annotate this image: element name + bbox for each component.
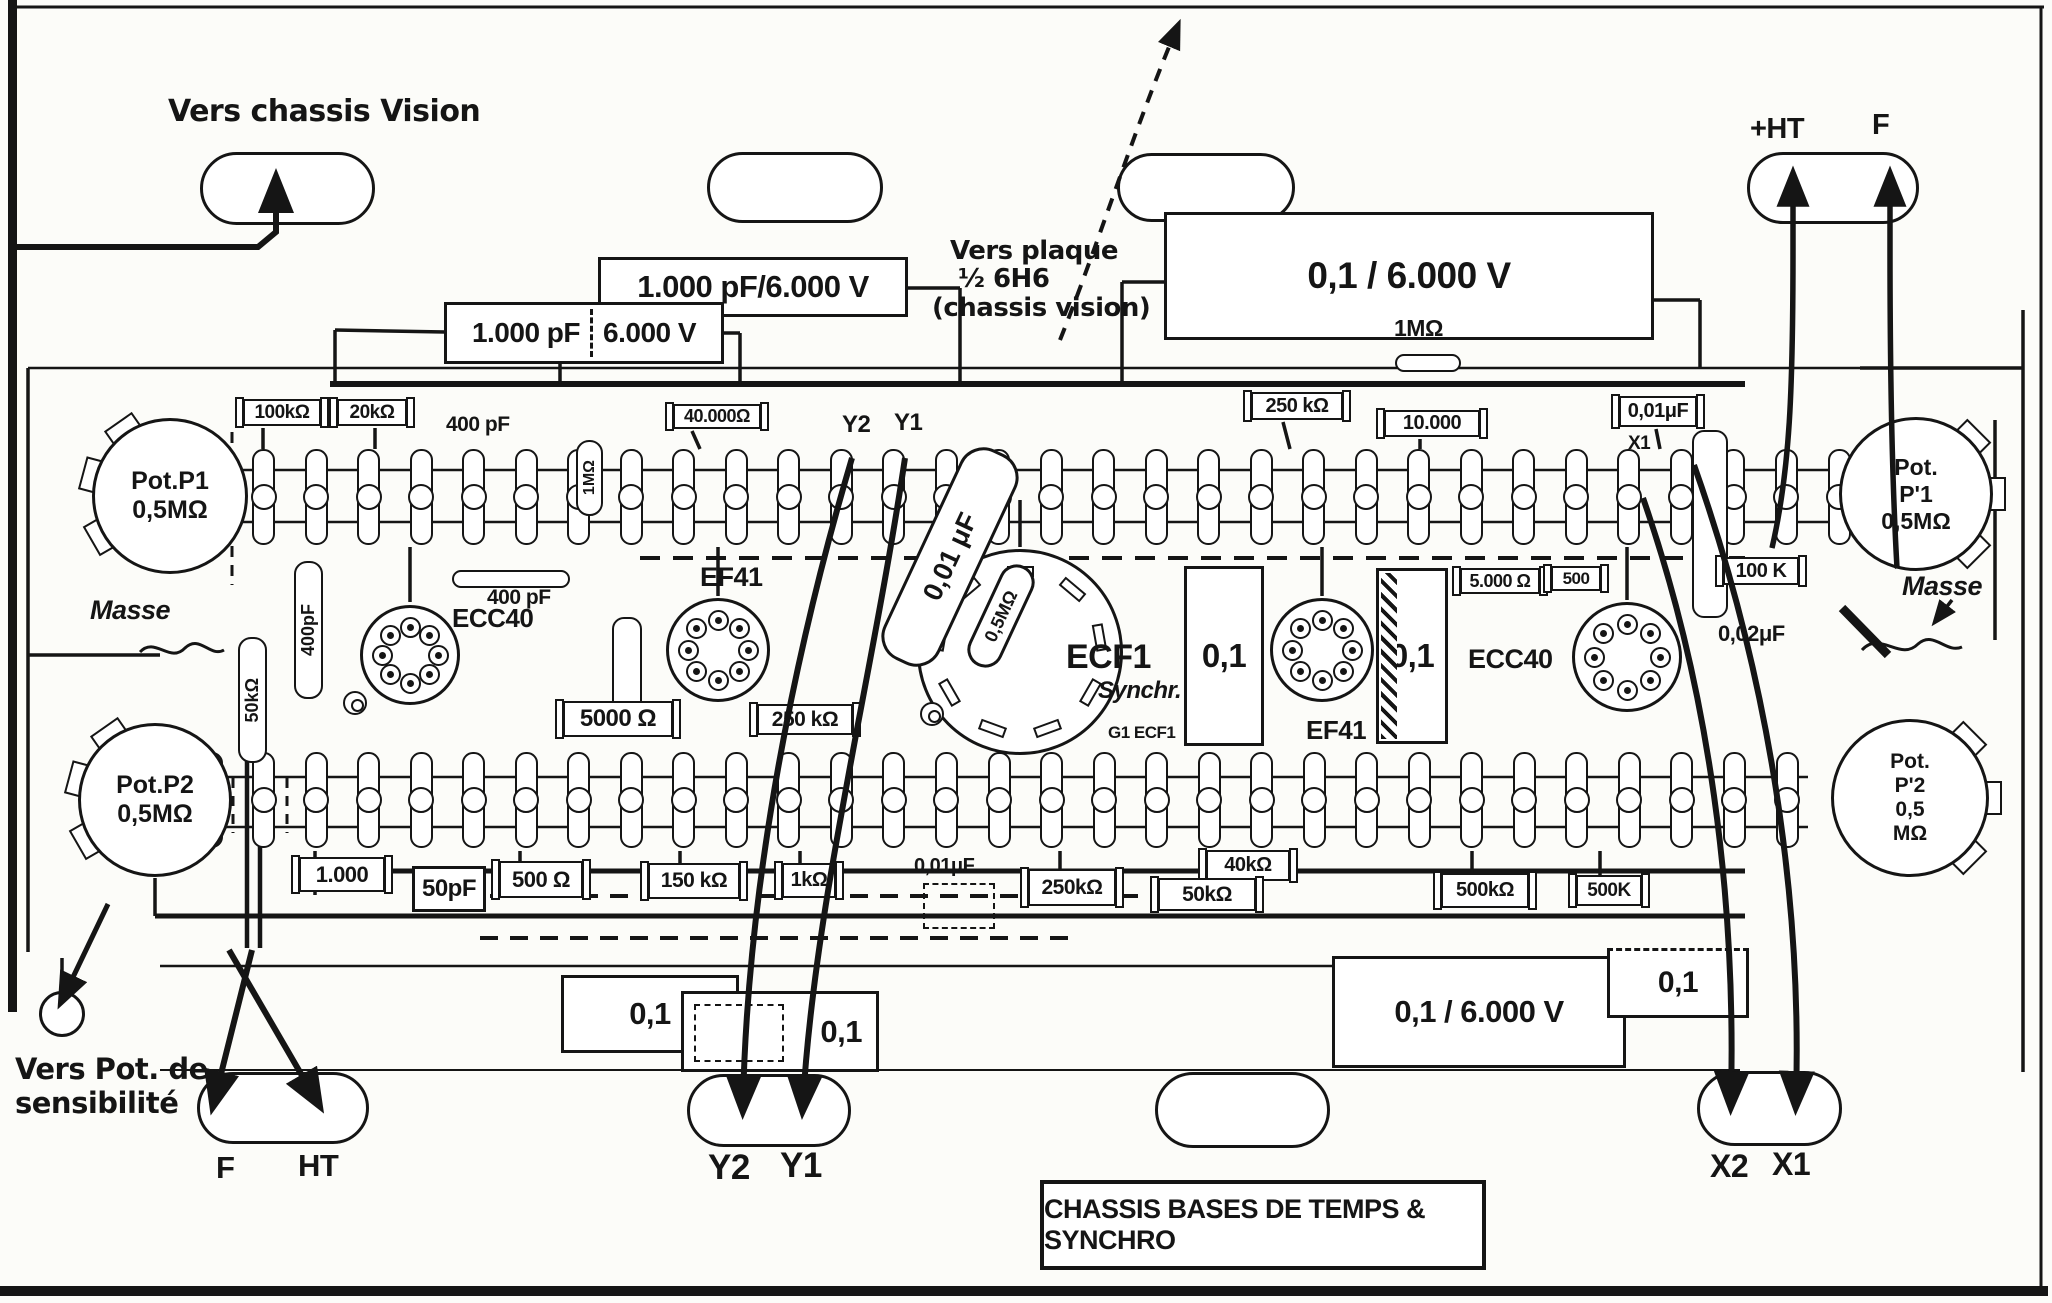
component-50kohm-vertical-label: 50kΩ <box>242 678 263 722</box>
component-400pf-vertical: 400pF <box>294 561 323 699</box>
resistor-endcap <box>852 702 861 737</box>
lug-solder-hole <box>671 787 697 813</box>
lug-solder-hole <box>1563 484 1589 510</box>
pin-center <box>1591 654 1598 661</box>
label-y2-top: Y2 <box>842 412 870 437</box>
lug-solder-hole <box>1564 787 1590 813</box>
terminal-lug <box>1145 752 1168 848</box>
label-f-bottom: F <box>216 1152 234 1185</box>
resistor-endcap <box>1479 408 1488 439</box>
terminal-lug <box>725 449 748 545</box>
component-500kohm-label: 500kΩ <box>1456 879 1514 902</box>
pin-center <box>387 632 394 639</box>
lug-solder-hole <box>513 484 539 510</box>
pin-center <box>1319 677 1326 684</box>
hole-bottom-left <box>197 1072 369 1144</box>
component-10000-label: 10.000 <box>1403 412 1461 435</box>
socket-pin <box>400 673 421 694</box>
component-20kohm: 20kΩ <box>337 399 407 426</box>
terminal-lug <box>777 752 800 848</box>
socket-pin <box>1650 647 1671 668</box>
lug-solder-hole <box>723 787 749 813</box>
pin-center <box>1624 687 1631 694</box>
box-divider <box>590 309 593 357</box>
resistor-endcap <box>406 397 415 428</box>
lug-solder-hole <box>1773 484 1799 510</box>
resistor-endcap <box>1641 873 1650 908</box>
target-center <box>928 710 941 723</box>
label-400pf-top: 400 pF <box>446 414 510 436</box>
socket-pin <box>729 661 750 682</box>
resistor-endcap <box>760 402 769 431</box>
resistor-endcap <box>235 397 244 428</box>
component-400pf-vertical-label: 400pF <box>298 604 319 656</box>
hole-top-right <box>1747 152 1919 224</box>
component-100k-right-label: 100 K <box>1736 560 1787 583</box>
label-002uf: 0,02μF <box>1718 622 1785 645</box>
terminal-lug <box>672 752 695 848</box>
socket-pin <box>1342 640 1363 661</box>
pin-center <box>715 677 722 684</box>
terminal-lug <box>1198 752 1221 848</box>
pin-center <box>1297 625 1304 632</box>
socket-pin <box>1333 661 1354 682</box>
terminal-lug <box>357 449 380 545</box>
capacitor-002uf-body <box>1692 430 1728 618</box>
lug-solder-hole <box>251 484 277 510</box>
lug-solder-hole <box>1669 787 1695 813</box>
terminal-lug <box>620 449 643 545</box>
socket-pin <box>738 640 759 661</box>
component-500-right: 500 <box>1551 566 1601 591</box>
socket-pin <box>400 617 421 638</box>
resistor-endcap <box>320 397 329 428</box>
pot-p2-label-line1: 0,5MΩ <box>117 800 193 829</box>
pin-center <box>1657 654 1664 661</box>
component-001uf-topright: 0,01μF <box>1619 396 1697 427</box>
hole-bottom-center <box>687 1074 851 1147</box>
terminal-lug <box>567 752 590 848</box>
pin-center <box>1647 677 1654 684</box>
resistor-endcap <box>291 855 300 894</box>
resistor-endcap <box>1543 564 1552 593</box>
lug-solder-hole <box>1616 787 1642 813</box>
pin-center <box>693 668 700 675</box>
annotation-vers-plaque-line1: Vers plaque <box>950 238 1118 265</box>
socket-pin <box>1640 623 1661 644</box>
terminal-lug <box>830 449 853 545</box>
annotation-vers-pot-line2: sensibilité <box>15 1088 178 1118</box>
resistor-endcap <box>1600 564 1609 593</box>
pot-p2-prime: Pot.P'20,5MΩ <box>1831 719 1989 877</box>
resistor-endcap <box>329 397 338 428</box>
lug-solder-hole <box>303 787 329 813</box>
component-250kohm-top-label: 250 kΩ <box>1265 395 1328 418</box>
resistor-endcap <box>1150 876 1159 913</box>
lug-solder-hole <box>933 787 959 813</box>
lug-solder-hole <box>408 484 434 510</box>
capacitor-1000pf-6000v-split: 1.000 pF6.000 V <box>444 302 724 364</box>
hole-top-midleft <box>707 152 883 223</box>
pin-center <box>1600 677 1607 684</box>
resistor-1mohm-body <box>1395 354 1461 372</box>
component-5000ohm-left: 5000 Ω <box>563 701 673 737</box>
label-f-top: F <box>1872 110 1889 140</box>
terminal-lug <box>515 752 538 848</box>
socket-pin <box>428 645 449 666</box>
pin-center <box>407 680 414 687</box>
capacitor-01-bottomright: 0,1 <box>1607 948 1749 1018</box>
pot-p1-prime-label-line0: Pot. <box>1894 454 1937 481</box>
lug-solder-hole <box>1354 787 1380 813</box>
component-500ohm-bottom: 500 Ω <box>499 861 583 898</box>
pin-center <box>426 632 433 639</box>
pin-center <box>1340 668 1347 675</box>
resistor-endcap <box>749 702 758 737</box>
lug-solder-hole <box>828 484 854 510</box>
socket-pin <box>1617 680 1638 701</box>
terminal-lug <box>988 752 1011 848</box>
lug-solder-hole <box>566 787 592 813</box>
hole-top-left <box>200 152 375 225</box>
terminal-lug <box>1513 752 1536 848</box>
terminal-lug <box>1512 449 1535 545</box>
lug-solder-hole <box>1616 484 1642 510</box>
terminal-lug <box>1303 752 1326 848</box>
component-5000ohm-right: 5.000 Ω <box>1460 568 1540 594</box>
component-5000ohm-left-label: 5000 Ω <box>580 705 656 733</box>
component-100k-right: 100 K <box>1723 557 1799 585</box>
pin-center <box>426 671 433 678</box>
title-box: CHASSIS BASES DE TEMPS & SYNCHRO <box>1040 1180 1486 1270</box>
terminal-lug <box>305 449 328 545</box>
component-40kohm-label: 40kΩ <box>1224 854 1271 877</box>
resistor-endcap <box>1243 390 1252 422</box>
lug-solder-hole <box>1459 787 1485 813</box>
lug-solder-hole <box>881 484 907 510</box>
capacitor-01-box2: 0,1 <box>681 991 879 1072</box>
terminal-lug <box>1460 752 1483 848</box>
terminal-lug <box>357 752 380 848</box>
pin-center <box>685 647 692 654</box>
lug-solder-hole <box>1511 787 1537 813</box>
terminal-lug <box>1355 449 1378 545</box>
pin-center <box>693 625 700 632</box>
component-50pf: 50pF <box>412 866 486 912</box>
lug-solder-hole <box>1774 787 1800 813</box>
lug-solder-hole <box>1196 787 1222 813</box>
terminal-lug <box>830 752 853 848</box>
pin-center <box>1349 647 1356 654</box>
component-001uf-topright-label: 0,01μF <box>1628 400 1688 423</box>
terminal-lug <box>462 449 485 545</box>
resistor-endcap <box>672 699 681 739</box>
lug-solder-hole <box>461 484 487 510</box>
lug-solder-hole <box>1721 787 1747 813</box>
component-1000-bottom: 1.000 <box>299 857 385 892</box>
terminal-lug <box>935 752 958 848</box>
resistor-endcap <box>555 699 564 739</box>
annotation-vers-pot-line1: Vers Pot. de <box>15 1054 208 1084</box>
pin-center <box>1340 625 1347 632</box>
pin-center <box>736 668 743 675</box>
capacitor-01-vert1: 0,1 <box>1184 566 1264 746</box>
resistor-endcap <box>1611 394 1620 429</box>
resistor-endcap <box>835 861 844 900</box>
lug-solder-hole <box>356 787 382 813</box>
resistor-endcap <box>1376 408 1385 439</box>
component-250kohm-bottom-label: 250kΩ <box>1041 876 1102 900</box>
label-plus-ht: +HT <box>1750 114 1804 144</box>
lug-solder-hole <box>671 484 697 510</box>
lug-solder-hole <box>828 787 854 813</box>
resistor-endcap <box>1798 555 1807 587</box>
terminal-lug <box>305 752 328 848</box>
capacitor-01-vert2: 0,1 <box>1376 568 1448 744</box>
component-1mohm-vertical: 1MΩ <box>576 440 603 516</box>
socket-pin <box>372 645 393 666</box>
lug-solder-hole <box>251 787 277 813</box>
lug-solder-hole <box>513 787 539 813</box>
component-1mohm-vertical-label: 1MΩ <box>581 460 599 495</box>
resistor-endcap <box>491 859 500 900</box>
terminal-lug <box>1618 752 1641 848</box>
pot-p1-prime: Pot.P'10,5MΩ <box>1839 417 1993 571</box>
lug-solder-hole <box>881 787 907 813</box>
component-50pf-label: 50pF <box>422 875 476 903</box>
component-5000ohm-right-label: 5.000 Ω <box>1470 571 1531 592</box>
resistor-endcap <box>1289 848 1298 883</box>
component-1kohm: 1kΩ <box>782 863 836 898</box>
lug-solder-hole <box>1039 787 1065 813</box>
lug-solder-hole <box>1249 787 1275 813</box>
annotation-vers-plaque-line3: (chassis vision) <box>932 295 1150 322</box>
capacitor-1000pf-6000v-label: 1.000 pF/6.000 V <box>637 269 869 305</box>
label-x1-top: X1 <box>1628 434 1650 454</box>
component-20kohm-label: 20kΩ <box>350 402 395 424</box>
lug-solder-hole <box>1248 484 1274 510</box>
terminal-lug <box>882 449 905 545</box>
terminal-lug <box>725 752 748 848</box>
capacitor-01-vert2-label: 0,1 <box>1390 637 1434 675</box>
label-masse-right: Masse <box>1902 572 1982 600</box>
terminal-lug <box>410 449 433 545</box>
component-10000: 10.000 <box>1384 410 1480 437</box>
component-500kohm: 500kΩ <box>1441 873 1529 908</box>
lug-solder-hole <box>618 484 644 510</box>
socket-pin <box>1312 670 1333 691</box>
socket-pin <box>708 670 729 691</box>
hole-bottom-right <box>1697 1071 1842 1146</box>
lug-solder-hole <box>1511 484 1537 510</box>
socket-pin <box>678 640 699 661</box>
capacitor-01-vert1-label: 0,1 <box>1202 637 1246 675</box>
capacitor-01-6000v-bottom-label: 0,1 / 6.000 V <box>1394 994 1563 1030</box>
resistor-endcap <box>1342 390 1351 422</box>
terminal-lug <box>1040 752 1063 848</box>
capacitor-01-bottomright-label: 0,1 <box>1658 966 1698 1000</box>
component-500-right-label: 500 <box>1563 569 1590 589</box>
socket-pin <box>1640 670 1661 691</box>
pot-p1: Pot.P10,5MΩ <box>92 418 248 574</box>
terminal-lug <box>882 752 905 848</box>
label-y1-bottom: Y1 <box>780 1148 822 1185</box>
resistor-endcap <box>1696 394 1705 429</box>
pot-p1-label-line0: Pot.P1 <box>131 467 209 496</box>
pin-center <box>715 617 722 624</box>
tube-label-ef41: EF41 <box>700 563 763 591</box>
component-50kohm-vertical: 50kΩ <box>238 637 267 763</box>
resistor-endcap <box>1568 873 1577 908</box>
terminal-lug <box>1092 449 1115 545</box>
terminal-lug <box>252 449 275 545</box>
component-250kohm-mid-label: 250 kΩ <box>772 708 838 732</box>
component-150kohm: 150 kΩ <box>648 863 740 899</box>
terminal-lug <box>462 752 485 848</box>
tube-label-ecf1: ECF1 <box>1066 640 1151 676</box>
terminal-lug <box>1460 449 1483 545</box>
resistor-endcap <box>1433 871 1442 910</box>
socket-pin <box>708 610 729 631</box>
socket-pin <box>380 664 401 685</box>
lug-solder-hole <box>1196 484 1222 510</box>
pin-center <box>379 652 386 659</box>
schematic-canvas: Vers chassis VisionVers plaque½ 6H6(chas… <box>0 0 2052 1303</box>
terminal-lug <box>1093 752 1116 848</box>
terminal-lug <box>1670 449 1693 545</box>
lug-solder-hole <box>1301 787 1327 813</box>
capacitor-01-box1-label: 0,1 <box>629 996 671 1032</box>
pot-p2-prime-label-line0: Pot. <box>1890 750 1930 774</box>
component-150kohm-label: 150 kΩ <box>661 869 727 893</box>
lug-solder-hole <box>1143 484 1169 510</box>
component-50kohm-bottom: 50kΩ <box>1158 878 1256 911</box>
lug-solder-hole <box>618 787 644 813</box>
terminal-lug <box>777 449 800 545</box>
component-250kohm-bottom: 250kΩ <box>1028 869 1116 906</box>
mount-target-1 <box>343 691 367 715</box>
pin-center <box>1647 630 1654 637</box>
lug-solder-hole <box>1406 787 1432 813</box>
label-g1-ecf1: G1 ECF1 <box>1108 724 1175 742</box>
resistor-endcap <box>1715 555 1724 587</box>
capacitor-01-box2-label: 0,1 <box>820 1014 862 1050</box>
pot-p1-prime-label-line2: 0,5MΩ <box>1881 508 1951 535</box>
lug-solder-hole <box>723 484 749 510</box>
capacitor-1000pf-6000v-split-label: 1.000 pF <box>472 317 580 349</box>
lug-solder-hole <box>1091 484 1117 510</box>
lug-solder-hole <box>1406 484 1432 510</box>
annotation-vers-plaque-line2: ½ 6H6 <box>958 266 1049 293</box>
terminal-lug <box>1355 752 1378 848</box>
socket-pin <box>1584 647 1605 668</box>
resistor-endcap <box>739 861 748 901</box>
pin-center <box>435 652 442 659</box>
lug-solder-hole <box>776 787 802 813</box>
title-box-label: CHASSIS BASES DE TEMPS & SYNCHRO <box>1044 1194 1482 1256</box>
socket-pin <box>1593 670 1614 691</box>
pin-center <box>1624 621 1631 628</box>
resistor-endcap <box>774 861 783 900</box>
component-100kohm-label: 100kΩ <box>254 402 309 424</box>
label-y2-bottom: Y2 <box>708 1150 750 1187</box>
socket-pin <box>1282 640 1303 661</box>
resistor-endcap <box>1528 871 1537 910</box>
component-50kohm-bottom-label: 50kΩ <box>1182 883 1232 907</box>
terminal-lug <box>1565 752 1588 848</box>
lug-solder-hole <box>303 484 329 510</box>
pin-center <box>1600 630 1607 637</box>
terminal-lug <box>1250 752 1273 848</box>
pot-p2-prime-label-line3: MΩ <box>1893 822 1927 846</box>
terminal-lug <box>1617 449 1640 545</box>
lug-solder-hole <box>461 787 487 813</box>
pin-center <box>1297 668 1304 675</box>
pin-center <box>387 671 394 678</box>
terminal-lug <box>1302 449 1325 545</box>
lug-solder-hole <box>356 484 382 510</box>
terminal-lug <box>410 752 433 848</box>
terminal-lug <box>1565 449 1588 545</box>
capacitor-1000pf-6000v-split-label2: 6.000 V <box>603 317 696 349</box>
terminal-lug <box>1407 449 1430 545</box>
socket-pin <box>686 661 707 682</box>
terminal-lug <box>1670 752 1693 848</box>
hole-sensibilite <box>39 991 85 1037</box>
lug-solder-hole <box>1091 787 1117 813</box>
terminal-lug <box>515 449 538 545</box>
pot-p2-prime-label-line2: 0,5 <box>1895 798 1924 822</box>
target-center <box>351 699 364 712</box>
lug-solder-hole <box>986 787 1012 813</box>
component-500k-label: 500K <box>1587 880 1630 902</box>
label-masse-left: Masse <box>90 596 170 624</box>
component-100kohm: 100kΩ <box>243 399 321 426</box>
label-001uf-bottom: 0,01μF. <box>914 856 977 877</box>
terminal-lug <box>1723 752 1746 848</box>
component-500k: 500K <box>1576 875 1642 906</box>
pot-p2: Pot.P20,5MΩ <box>78 723 232 877</box>
terminal-lug <box>1040 449 1063 545</box>
terminal-lug <box>1250 449 1273 545</box>
resistor-endcap <box>1255 876 1264 913</box>
component-1000-bottom-label: 1.000 <box>316 862 369 888</box>
socket-pin <box>1617 614 1638 635</box>
resistor-endcap <box>384 855 393 894</box>
terminal-lug <box>1775 449 1798 545</box>
label-x1-bottom: X1 <box>1772 1148 1810 1182</box>
label-x2-bottom: X2 <box>1710 1150 1748 1184</box>
lug-solder-hole <box>1301 484 1327 510</box>
pin-center <box>1319 617 1326 624</box>
component-40000ohm: 40.000Ω <box>673 404 761 429</box>
socket-pin <box>1312 610 1333 631</box>
label-1mohm-top: 1MΩ <box>1394 316 1443 340</box>
annotation-vers-chassis-vision: Vers chassis Vision <box>168 96 480 128</box>
terminal-lug <box>1776 752 1799 848</box>
capacitor-01-6000v-top-label: 0,1 / 6.000 V <box>1307 255 1510 297</box>
resistor-endcap <box>1452 566 1461 596</box>
component-500ohm-bottom-label: 500 Ω <box>512 867 570 893</box>
terminal-lug <box>1145 449 1168 545</box>
socket-pin <box>1290 661 1311 682</box>
capacitor-dashed-001uf <box>923 883 995 929</box>
lug-solder-hole <box>776 484 802 510</box>
socket-pin <box>1333 618 1354 639</box>
component-250kohm-mid: 250 kΩ <box>757 704 853 735</box>
capacitor-01-6000v-bottom: 0,1 / 6.000 V <box>1332 956 1626 1068</box>
label-ht-bottom: HT <box>298 1150 338 1183</box>
